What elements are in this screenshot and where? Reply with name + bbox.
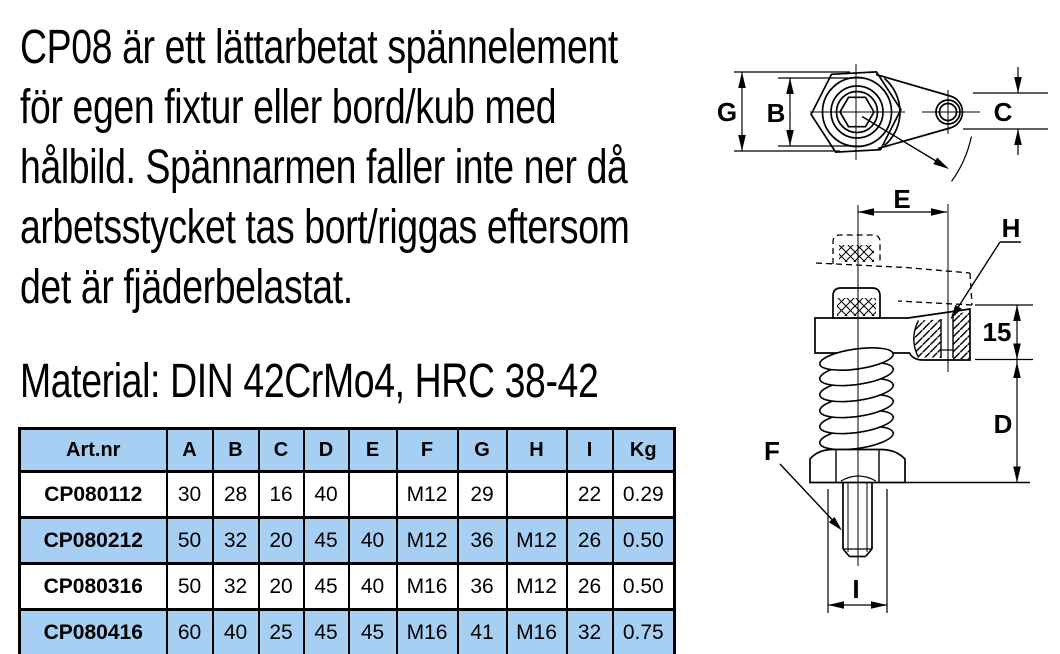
datasheet-page: CP08 är ett lättarbetat spännelement för… (0, 0, 1060, 654)
technical-drawing: G B C E (0, 0, 1060, 654)
dim-label-d: D (994, 409, 1013, 439)
top-view: G B C (717, 64, 1048, 181)
dim-label-i: I (852, 574, 859, 604)
dim-label-c: C (994, 97, 1013, 127)
dim-label-lift-15: 15 (983, 317, 1012, 347)
dim-label-e: E (893, 184, 910, 214)
dim-label-g: G (717, 97, 737, 127)
side-view: E H (764, 184, 1033, 613)
swing-arrowhead (933, 158, 949, 170)
dim-label-h: H (1002, 213, 1021, 243)
spring (818, 344, 894, 454)
dim-label-f: F (764, 436, 780, 466)
dim-label-b: B (767, 98, 786, 128)
